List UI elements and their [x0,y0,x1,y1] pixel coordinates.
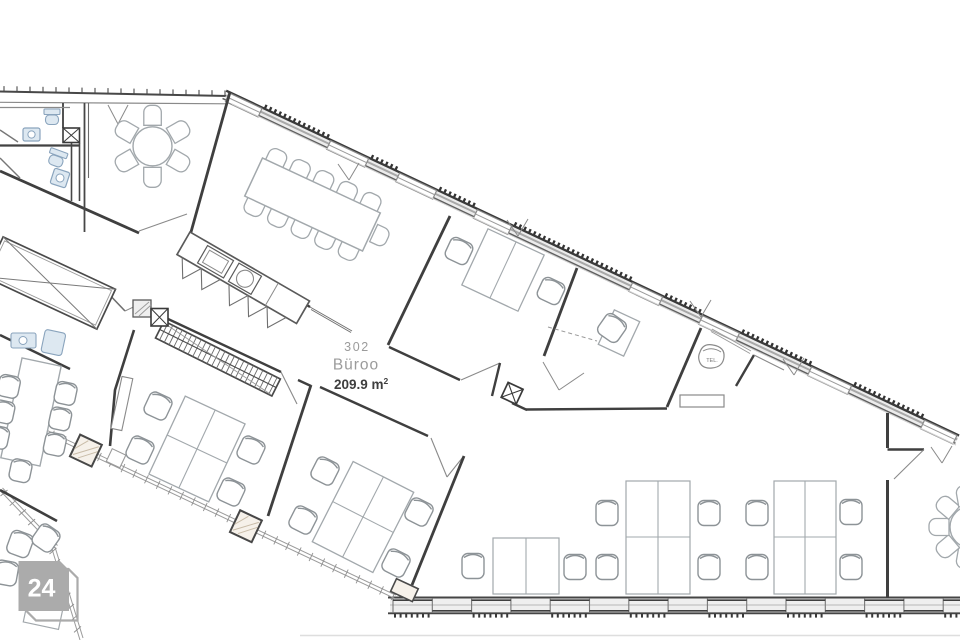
svg-text:TEL.: TEL. [706,358,718,364]
svg-text:302: 302 [344,340,370,354]
svg-text:24: 24 [28,575,56,603]
svg-text:209.9 m2: 209.9 m2 [334,376,389,392]
svg-text:Büroo: Büroo [333,357,379,374]
